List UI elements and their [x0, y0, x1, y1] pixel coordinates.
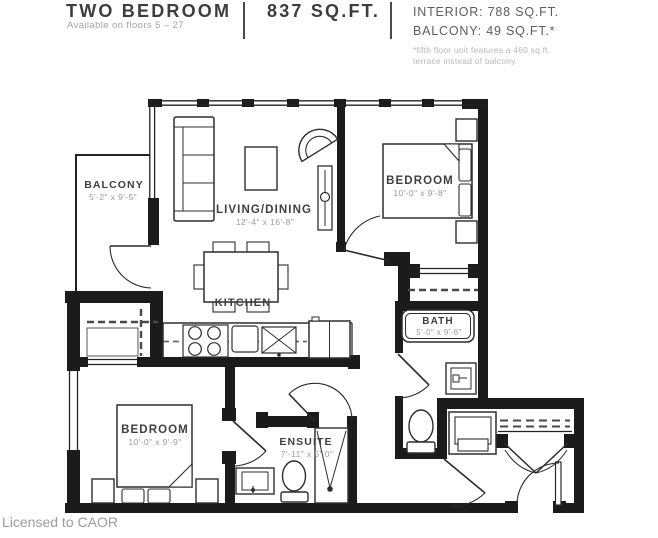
bed-second: [117, 405, 192, 503]
floorplan-page: TWO BEDROOM Available on floors 5 – 27 8…: [0, 0, 658, 538]
room-dims-balcony: 5'-2" x 9'-5": [89, 192, 137, 202]
balcony-door: [110, 246, 151, 288]
room-label-kitchen: KITCHEN: [215, 297, 272, 309]
tv-console: [318, 166, 332, 230]
floor-plan: BALCONY 5'-2" x 9'-5" LIVING/DINING 12'-…: [0, 0, 658, 538]
bath-sink: [446, 363, 476, 394]
ensuite-vanity: [236, 468, 274, 494]
fridge: [309, 317, 350, 358]
room-label-bath: BATH: [422, 316, 453, 327]
room-dims-ensuite: 7'-11" x 5'-0": [281, 449, 334, 459]
room-dims-bedroom-primary: 10'-0" x 9'-8": [393, 188, 446, 198]
room-label-bedroom-primary: BEDROOM: [386, 175, 454, 187]
ensuite-door: [289, 383, 352, 421]
room-dims-bedroom-second: 10'-0" x 9'-9": [128, 437, 181, 447]
nightstand: [456, 119, 477, 141]
bedroom1-door: [344, 216, 390, 261]
room-label-living-dining: LIVING/DINING: [216, 204, 312, 216]
nightstand: [196, 479, 218, 503]
nightstand: [92, 479, 114, 503]
room-label-bedroom-second: BEDROOM: [121, 424, 189, 436]
accent-chair: [291, 121, 338, 161]
nightstand: [456, 221, 477, 243]
room-label-balcony: BALCONY: [84, 179, 144, 191]
bath-toilet: [407, 410, 435, 453]
cooktop: [183, 325, 228, 357]
coffee-table: [245, 147, 277, 190]
laundry-door: [444, 459, 485, 507]
bath-door: [398, 354, 429, 398]
closet2-shelf: [87, 328, 138, 356]
washer-dryer: [449, 412, 496, 454]
room-dims-bath: 5'-0" x 9'-6": [416, 328, 462, 337]
windows: [70, 101, 573, 450]
ensuite-toilet: [281, 461, 308, 502]
room-label-ensuite: ENSUITE: [279, 436, 332, 448]
kitchen-sink: [232, 326, 296, 357]
license-text: Licensed to CAOR: [2, 514, 118, 530]
room-dims-living-dining: 12'-4" x 16'-8": [236, 217, 294, 227]
sofa: [174, 117, 214, 221]
